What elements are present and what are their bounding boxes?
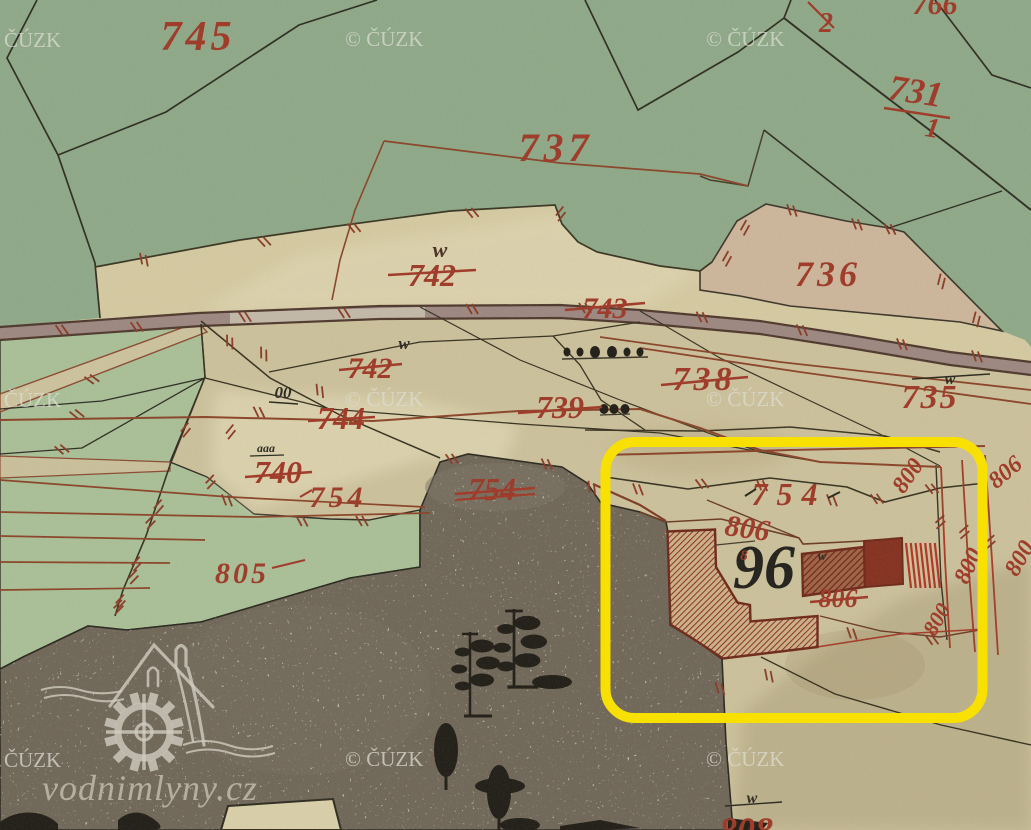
svg-text:vodnimlyny.cz: vodnimlyny.cz — [42, 768, 258, 808]
svg-text:© ČÚZK: © ČÚZK — [345, 387, 423, 411]
svg-text:© ČÚZK: © ČÚZK — [706, 747, 784, 771]
svg-text:© ČÚZK: © ČÚZK — [706, 387, 784, 411]
svg-text:ČÚZK: ČÚZK — [4, 388, 61, 412]
svg-text:© ČÚZK: © ČÚZK — [345, 747, 423, 771]
svg-text:© ČÚZK: © ČÚZK — [706, 27, 784, 51]
svg-text:© ČÚZK: © ČÚZK — [345, 27, 423, 51]
svg-text:ČÚZK: ČÚZK — [4, 28, 61, 52]
